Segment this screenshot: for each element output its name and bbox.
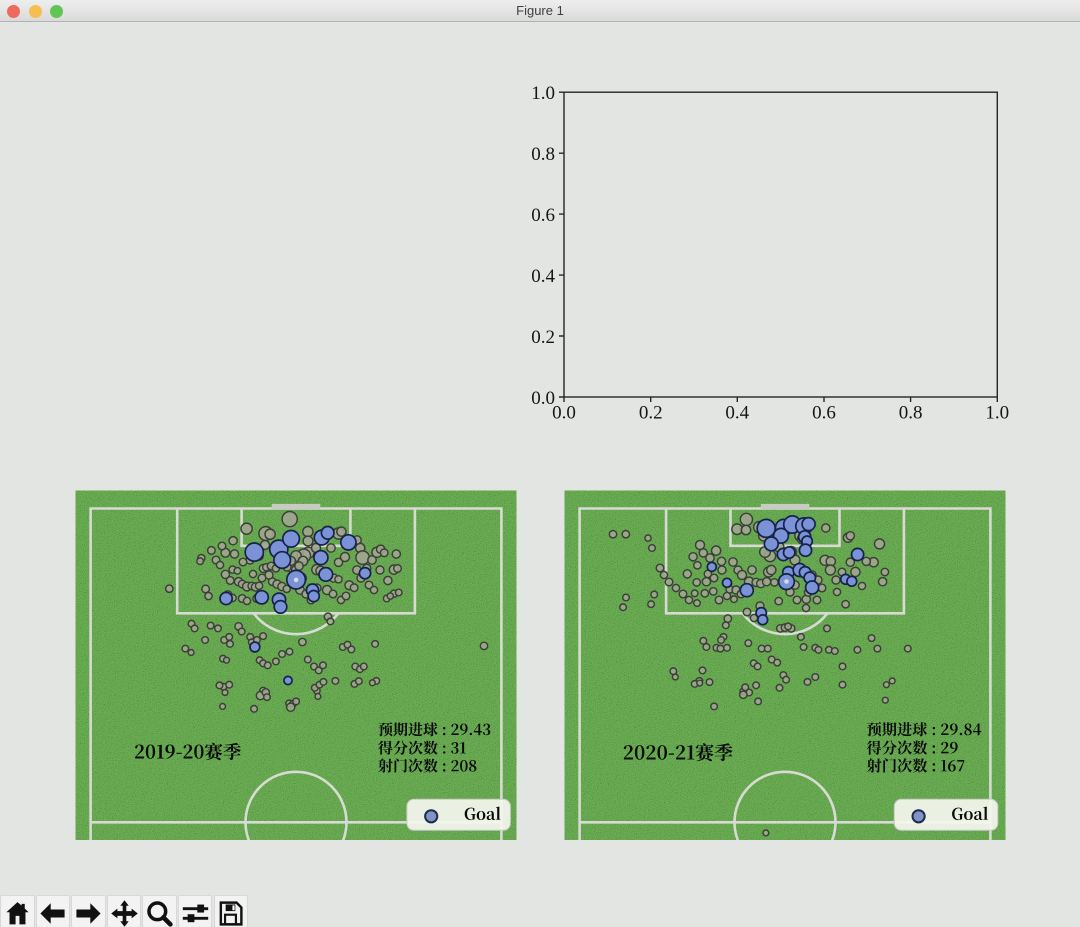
svg-text:0.2: 0.2	[531, 327, 555, 348]
svg-text:0.6: 0.6	[812, 403, 836, 424]
svg-text:1.0: 1.0	[985, 403, 1009, 424]
svg-text:0.0: 0.0	[531, 388, 555, 409]
svg-text:0.8: 0.8	[531, 144, 555, 165]
svg-text:0.0: 0.0	[552, 403, 576, 424]
svg-text:0.2: 0.2	[639, 403, 663, 424]
svg-text:1.0: 1.0	[531, 83, 555, 104]
svg-text:0.4: 0.4	[725, 403, 749, 424]
svg-text:0.4: 0.4	[531, 266, 555, 287]
svg-text:0.8: 0.8	[899, 403, 923, 424]
svg-text:0.6: 0.6	[531, 205, 555, 226]
